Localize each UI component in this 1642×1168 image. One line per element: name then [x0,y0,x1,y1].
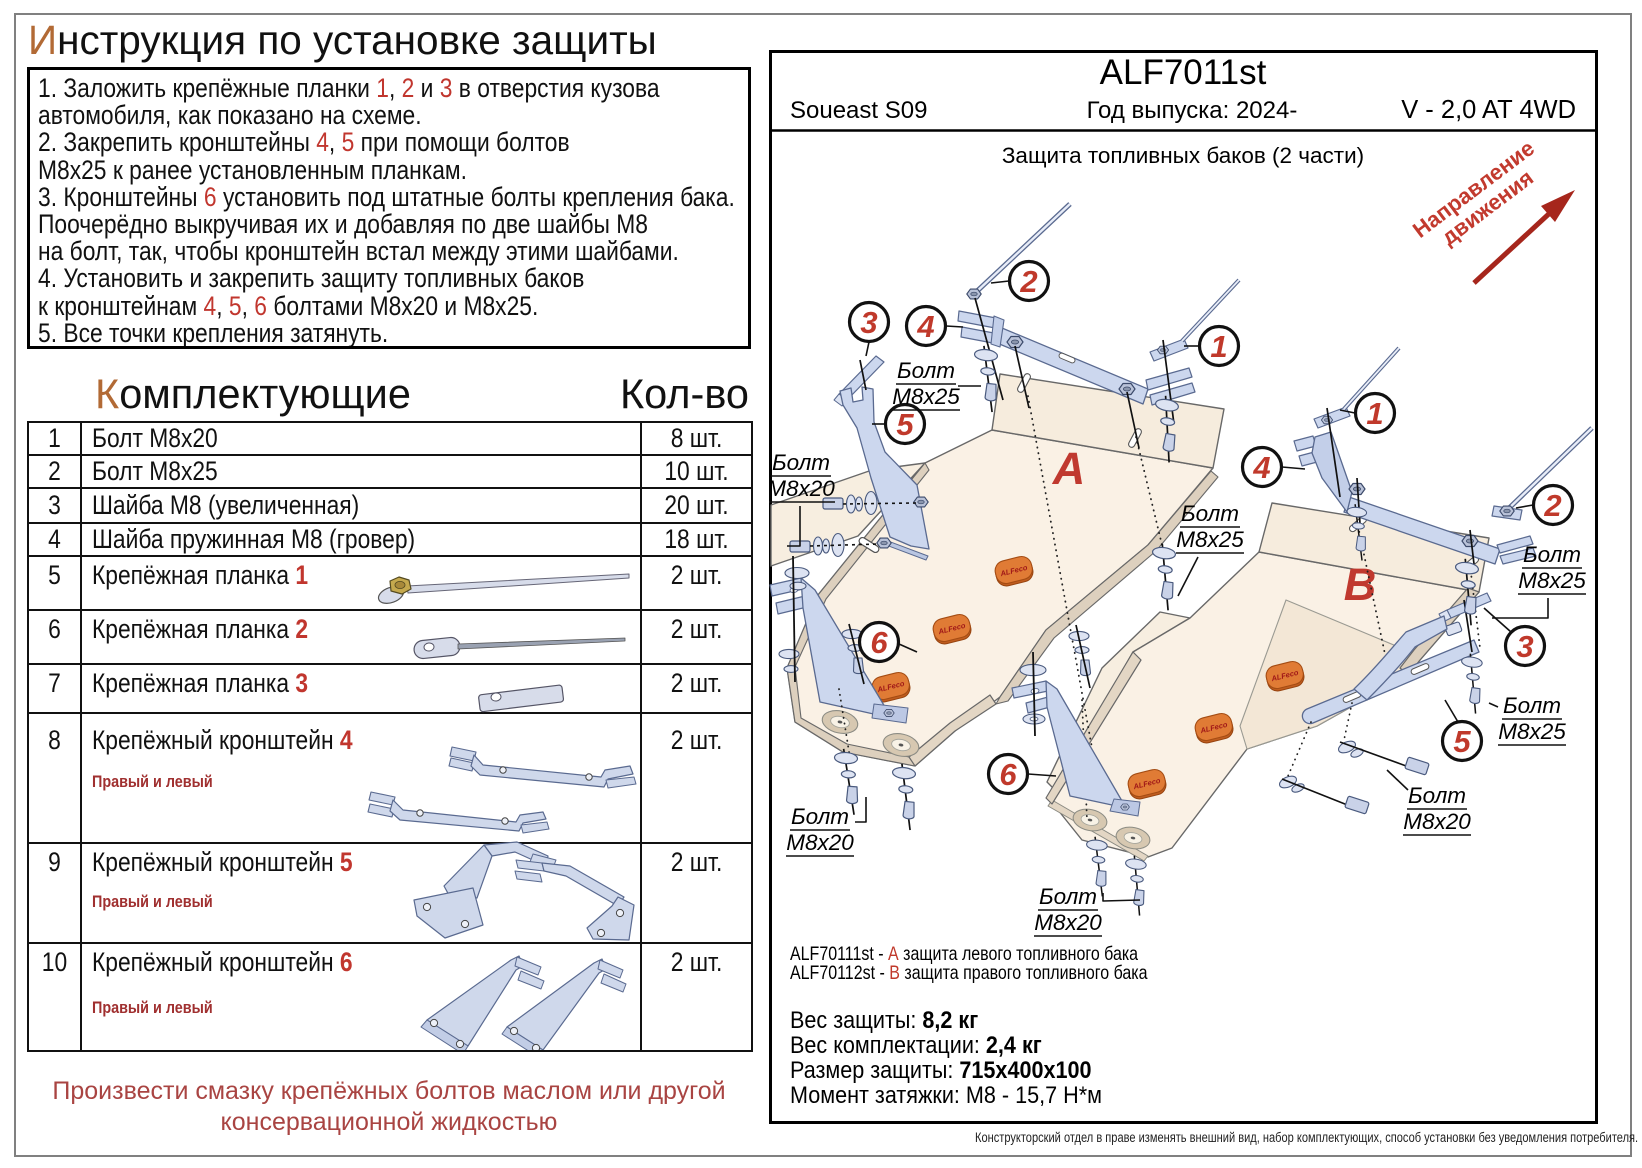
svg-text:Вес защиты: 8,2 кг: Вес защиты: 8,2 кг [790,1006,978,1033]
svg-text:Болт: Болт [1503,693,1561,718]
svg-text:4: 4 [1252,450,1270,485]
svg-text:М8х25: М8х25 [1518,568,1586,593]
svg-text:М8х20: М8х20 [1034,910,1102,935]
svg-text:М8х25: М8х25 [892,384,960,409]
svg-text:3: 3 [1516,629,1533,664]
svg-text:Год выпуска: 2024-: Год выпуска: 2024- [1087,97,1298,124]
svg-text:М8х20: М8х20 [769,476,835,501]
svg-text:М8х20: М8х20 [1403,809,1471,834]
svg-text:Болт: Болт [1181,501,1239,526]
svg-text:3: 3 [860,305,877,340]
svg-text:5: 5 [1453,724,1471,759]
svg-text:Защита топливных баков (2 част: Защита топливных баков (2 части) [1002,143,1364,168]
svg-text:1: 1 [1366,396,1383,431]
svg-text:М8х25: М8х25 [1176,527,1244,552]
svg-text:Болт: Болт [897,358,955,383]
svg-text:4: 4 [916,309,934,344]
svg-text:ALF70112st - B защита правого: ALF70112st - B защита правого топливного… [790,962,1148,984]
svg-text:Болт: Болт [1523,542,1581,567]
svg-text:ALF7011st: ALF7011st [1100,53,1267,92]
svg-text:М8х25: М8х25 [1498,719,1566,744]
svg-text:V - 2,0 AT 4WD: V - 2,0 AT 4WD [1401,96,1576,124]
svg-text:Болт: Болт [1408,783,1466,808]
svg-text:5: 5 [896,407,914,442]
svg-text:Вес комплектации: 2,4 кг: Вес комплектации: 2,4 кг [790,1031,1042,1058]
svg-text:Болт: Болт [1039,884,1097,909]
svg-text:Момент затяжки: М8 - 15,7 Н*м: Момент затяжки: М8 - 15,7 Н*м [790,1081,1102,1108]
svg-text:М8х20: М8х20 [786,830,854,855]
svg-text:Болт: Болт [791,804,849,829]
svg-text:1: 1 [1210,329,1227,364]
svg-text:Soueast S09: Soueast S09 [790,97,927,124]
svg-text:6: 6 [999,757,1017,792]
svg-text:Болт: Болт [772,450,830,475]
svg-text:B: B [1344,559,1377,610]
svg-text:2: 2 [1543,488,1561,523]
svg-text:Размер защиты: 715х400х100: Размер защиты: 715х400х100 [790,1056,1092,1083]
svg-text:A: A [1052,443,1086,494]
svg-text:6: 6 [870,625,888,660]
svg-text:2: 2 [1019,264,1037,299]
